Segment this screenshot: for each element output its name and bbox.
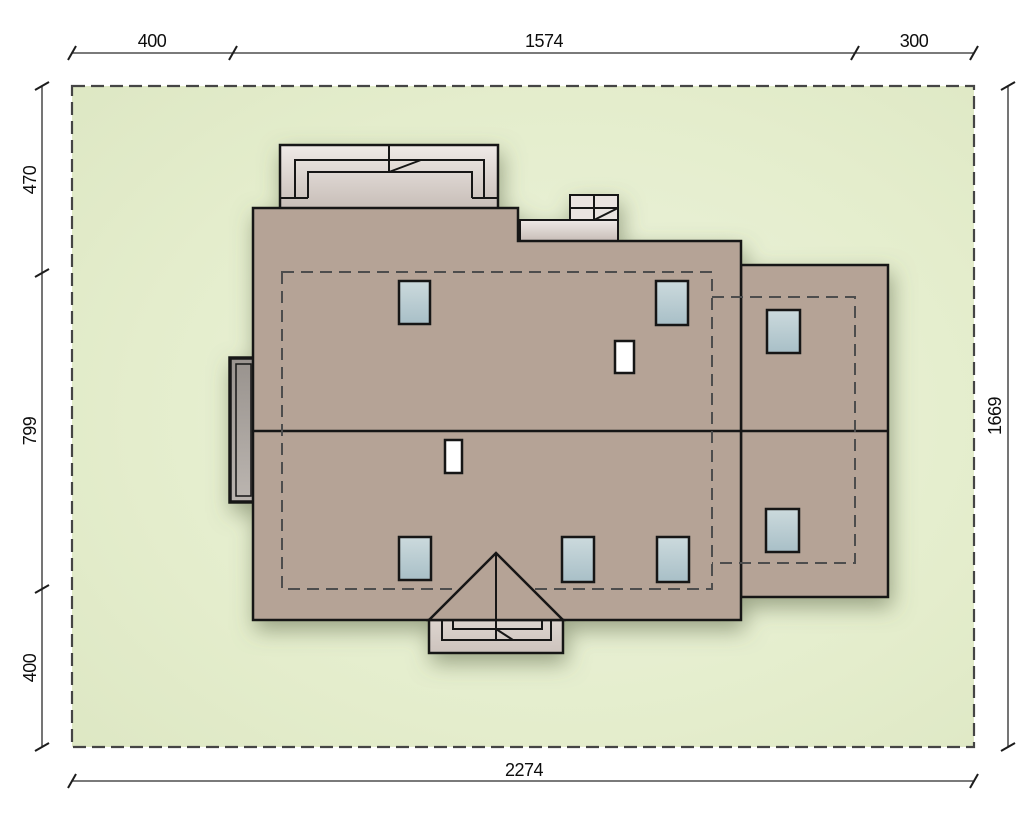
dim-label-left-470: 470 [20,165,40,194]
dormer-terrace [280,145,498,209]
dim-label-top-1574: 1574 [525,31,564,51]
roof-window [562,537,594,582]
roof-window [399,281,430,324]
dim-label-right-1669: 1669 [985,396,1005,435]
dim-label-left-799: 799 [20,416,40,445]
chimney [445,440,462,473]
dim-label-left-400: 400 [20,653,40,682]
roof-window [766,509,799,552]
site-plan-drawing: 400 1574 300 470 799 400 1669 2274 [0,0,1024,824]
roof-chimney-grid [570,195,618,220]
chimney [615,341,634,373]
site-plan-page: 400 1574 300 470 799 400 1669 2274 [0,0,1024,824]
roof-window [767,310,800,353]
roof-window [657,537,689,582]
roof-window [656,281,688,325]
dim-label-top-400: 400 [138,31,167,51]
dim-label-top-300: 300 [900,31,929,51]
dim-label-bottom-2274: 2274 [505,760,544,780]
roof-window [399,537,431,580]
chimney-base [520,220,618,241]
side-terrace-inner [236,364,251,496]
